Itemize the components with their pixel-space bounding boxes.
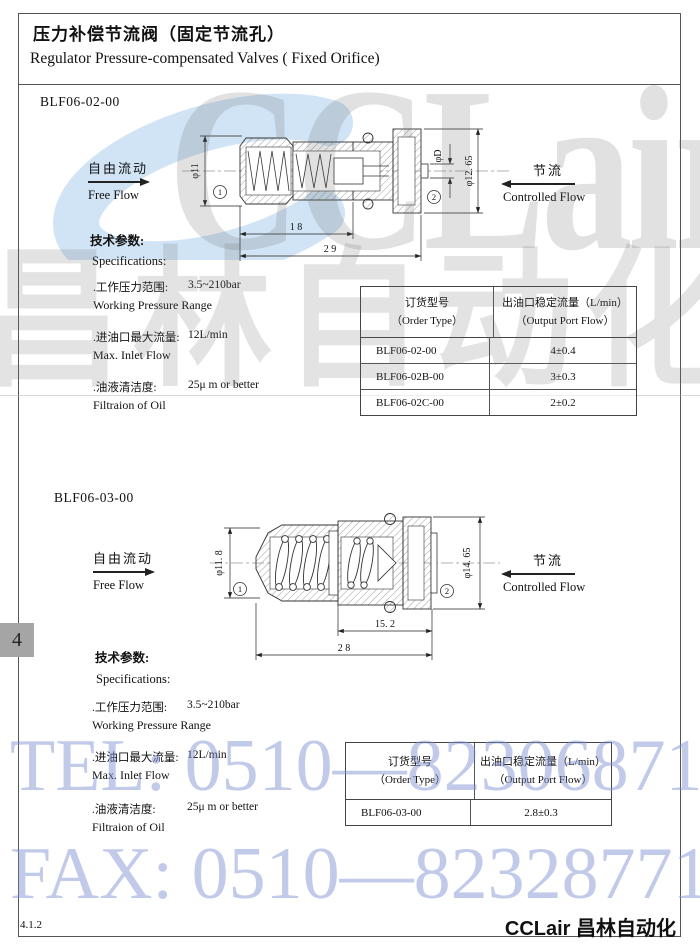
valve-drawing-blf06-02: φ11 φD φ12. 65 1 8 2 9 1 2 <box>178 106 538 266</box>
section-code: 4.1.2 <box>20 919 42 931</box>
right-arrow-icon <box>88 181 148 183</box>
table-header-output-flow: 出油口稳定流量（L/min） （Output Port Flow） <box>475 743 611 799</box>
table-row: BLF06-02B-00 3±0.3 <box>361 364 636 390</box>
flow-cell: 3±0.3 <box>490 371 636 383</box>
free-flow-label-2: 自由流动 Free Flow <box>93 548 153 593</box>
order-type-cell: BLF06-02B-00 <box>361 364 490 389</box>
order-type-cell: BLF06-02-00 <box>361 338 490 363</box>
table-row: BLF06-02C-00 2±0.2 <box>361 390 636 415</box>
flow-cell: 4±0.4 <box>490 345 636 357</box>
table-header-row: 订货型号 （Order Type） 出油口稳定流量（L/min） （Output… <box>361 287 636 338</box>
spec-value: 12L/min <box>187 749 332 765</box>
free-flow-en: Free Flow <box>93 578 153 593</box>
spec-label-en: Filtraion of Oil <box>93 398 333 413</box>
controlled-flow-en: Controlled Flow <box>503 190 585 205</box>
spec-label-zh: .进油口最大流量: <box>92 749 187 765</box>
left-arrow-icon <box>503 573 575 575</box>
dim-length-inner: 1 8 <box>290 222 303 233</box>
spec-max-inlet-flow-1: .进油口最大流量: 12L/min Max. Inlet Flow <box>93 329 333 363</box>
catalog-page: 压力补偿节流阀（固定节流孔） Regulator Pressure-compen… <box>0 0 700 950</box>
spec-label-en: Max. Inlet Flow <box>92 768 332 783</box>
params-title-en-1: Specifications: <box>92 254 166 269</box>
port-2-marker: 2 <box>432 192 436 202</box>
params-title-zh-2: 技术参数: <box>95 647 149 666</box>
model-heading-1: BLF06-02-00 <box>40 94 120 110</box>
controlled-flow-zh: 节流 <box>533 160 585 179</box>
dim-diameter-left: φ11. 8 <box>214 550 225 575</box>
free-flow-label-1: 自由流动 Free Flow <box>88 158 148 203</box>
controlled-flow-en: Controlled Flow <box>503 580 585 595</box>
page-title-en: Regulator Pressure-compensated Valves ( … <box>30 50 380 68</box>
header-zh: 订货型号 <box>363 294 491 312</box>
spec-label-en: Filtraion of Oil <box>92 820 332 835</box>
valve-drawing-blf06-03: φ11. 8 φ14. 65 15. 2 2 8 1 2 <box>208 503 538 673</box>
header-zh: 出油口稳定流量（L/min） <box>477 753 609 771</box>
header-en: （Output Port Flow） <box>477 771 609 789</box>
spec-label-en: Max. Inlet Flow <box>93 348 333 363</box>
table-row: BLF06-02-00 4±0.4 <box>361 338 636 364</box>
table-header-row: 订货型号 （Order Type） 出油口稳定流量（L/min） （Output… <box>346 743 611 800</box>
dim-length-total: 2 8 <box>338 643 351 654</box>
right-arrow-icon <box>93 571 153 573</box>
model-heading-2: BLF06-03-00 <box>54 490 134 506</box>
dim-diameter-orifice: φD <box>433 150 444 163</box>
brand-logo-text: CCLair 昌林自动化 <box>505 912 676 941</box>
spec-value: 12L/min <box>188 329 333 345</box>
flow-cell: 2±0.2 <box>490 397 636 409</box>
table-header-order-type: 订货型号 （Order Type） <box>361 287 494 337</box>
spec-label-en: Working Pressure Range <box>92 718 332 733</box>
spec-oil-filtration-2: .油液清洁度: 25μ m or better Filtraion of Oil <box>92 801 332 835</box>
dim-length-inner: 15. 2 <box>375 619 395 630</box>
valve-body-section <box>182 129 510 213</box>
port-2-marker: 2 <box>445 586 449 596</box>
port-1-marker: 1 <box>238 584 242 594</box>
port-1-marker: 1 <box>218 187 222 197</box>
spec-label-zh: .工作压力范围: <box>93 279 188 295</box>
free-flow-en: Free Flow <box>88 188 148 203</box>
dim-diameter-left: φ11 <box>190 163 201 178</box>
spec-label-zh: .工作压力范围: <box>92 699 187 715</box>
header-en: （Output Port Flow） <box>496 312 634 330</box>
spec-value: 25μ m or better <box>188 379 333 395</box>
params-title-en-2: Specifications: <box>96 672 170 687</box>
header-zh: 出油口稳定流量（L/min） <box>496 294 634 312</box>
flow-cell: 2.8±0.3 <box>471 807 611 819</box>
free-flow-zh: 自由流动 <box>88 158 148 177</box>
order-table-2: 订货型号 （Order Type） 出油口稳定流量（L/min） （Output… <box>345 742 612 826</box>
table-header-order-type: 订货型号 （Order Type） <box>346 743 475 799</box>
table-row: BLF06-03-00 2.8±0.3 <box>346 800 611 825</box>
header-en: （Order Type） <box>363 312 491 330</box>
spec-value: 25μ m or better <box>187 801 332 817</box>
order-type-cell: BLF06-03-00 <box>346 800 471 825</box>
dim-length-total: 2 9 <box>324 244 337 255</box>
controlled-flow-zh: 节流 <box>533 550 585 569</box>
spec-oil-filtration-1: .油液清洁度: 25μ m or better Filtraion of Oil <box>93 379 333 413</box>
spec-label-en: Working Pressure Range <box>93 298 333 313</box>
dim-diameter-right: φ14. 65 <box>462 548 473 579</box>
dim-diameter-right: φ12. 65 <box>464 156 475 187</box>
spec-label-zh: .油液清洁度: <box>92 801 187 817</box>
spec-pressure-range-2: .工作压力范围: 3.5~210bar Working Pressure Ran… <box>92 699 332 733</box>
left-arrow-icon <box>503 183 575 185</box>
spec-label-zh: .进油口最大流量: <box>93 329 188 345</box>
params-title-zh-1: 技术参数: <box>90 230 144 249</box>
spec-value: 3.5~210bar <box>188 279 333 295</box>
spec-max-inlet-flow-2: .进油口最大流量: 12L/min Max. Inlet Flow <box>92 749 332 783</box>
title-separator <box>18 84 681 85</box>
spec-value: 3.5~210bar <box>187 699 332 715</box>
controlled-flow-label-1: 节流 Controlled Flow <box>503 160 585 205</box>
header-en: （Order Type） <box>348 771 472 789</box>
order-type-cell: BLF06-02C-00 <box>361 390 490 415</box>
spec-pressure-range-1: .工作压力范围: 3.5~210bar Working Pressure Ran… <box>93 279 333 313</box>
order-table-1: 订货型号 （Order Type） 出油口稳定流量（L/min） （Output… <box>360 286 637 416</box>
spec-label-zh: .油液清洁度: <box>93 379 188 395</box>
header-zh: 订货型号 <box>348 753 472 771</box>
free-flow-zh: 自由流动 <box>93 548 153 567</box>
controlled-flow-label-2: 节流 Controlled Flow <box>503 550 585 595</box>
page-title-zh: 压力补偿节流阀（固定节流孔） <box>33 20 285 45</box>
page-number-tab: 4 <box>0 623 34 657</box>
table-header-output-flow: 出油口稳定流量（L/min） （Output Port Flow） <box>494 287 636 337</box>
